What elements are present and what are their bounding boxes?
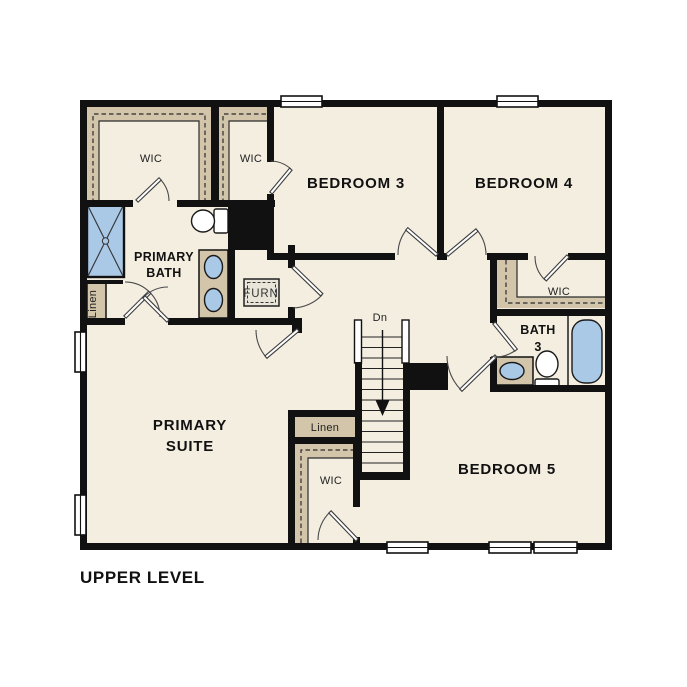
label-bath3-1: BATH — [520, 323, 555, 337]
window — [534, 542, 577, 553]
window — [75, 495, 86, 535]
stair-rail-right — [402, 320, 409, 363]
label-wic-bedroom5: WIC — [320, 475, 342, 487]
toilet-fixture-bath3 — [535, 351, 559, 390]
label-bath3-2: 3 — [534, 340, 541, 354]
label-linen-bath: Linen — [87, 290, 99, 318]
toilet-fixture-primary — [192, 209, 229, 233]
window — [497, 96, 538, 107]
label-linen-hall: Linen — [311, 422, 339, 434]
bathtub-fixture — [568, 316, 602, 386]
page-title: UPPER LEVEL — [80, 568, 205, 587]
vanity-fixture-primary — [199, 250, 228, 318]
sink-fixture — [205, 256, 223, 279]
stair-rail-left — [355, 320, 362, 363]
label-primary-bath-2: BATH — [146, 266, 181, 280]
vanity-fixture-bath3 — [492, 357, 533, 385]
window — [75, 332, 86, 372]
label-furnace: FURN — [243, 288, 278, 300]
floor-plan-page: WIC WIC BEDROOM 3 BEDROOM 4 PRIMARY BATH… — [0, 0, 687, 687]
label-primary-suite-1: PRIMARY — [153, 417, 227, 434]
label-wic-bedroom4: WIC — [548, 286, 570, 298]
shower-fixture — [87, 205, 124, 277]
chase-wall — [228, 205, 272, 250]
label-bedroom5: BEDROOM 5 — [458, 461, 556, 478]
label-primary-suite-2: SUITE — [166, 438, 214, 455]
label-bedroom4: BEDROOM 4 — [475, 175, 573, 192]
label-wic-primary: WIC — [140, 153, 162, 165]
label-wic-bedroom3: WIC — [240, 153, 262, 165]
window — [281, 96, 322, 107]
sink-fixture — [205, 289, 223, 312]
label-bedroom3: BEDROOM 3 — [307, 175, 405, 192]
window — [489, 542, 531, 553]
upper-level-floor-plan: WIC WIC BEDROOM 3 BEDROOM 4 PRIMARY BATH… — [0, 0, 687, 687]
label-primary-bath-1: PRIMARY — [134, 250, 194, 264]
sink-fixture — [500, 363, 524, 380]
chase-wall — [403, 363, 448, 390]
label-stairs-down: Dn — [373, 312, 388, 324]
window — [387, 542, 428, 553]
